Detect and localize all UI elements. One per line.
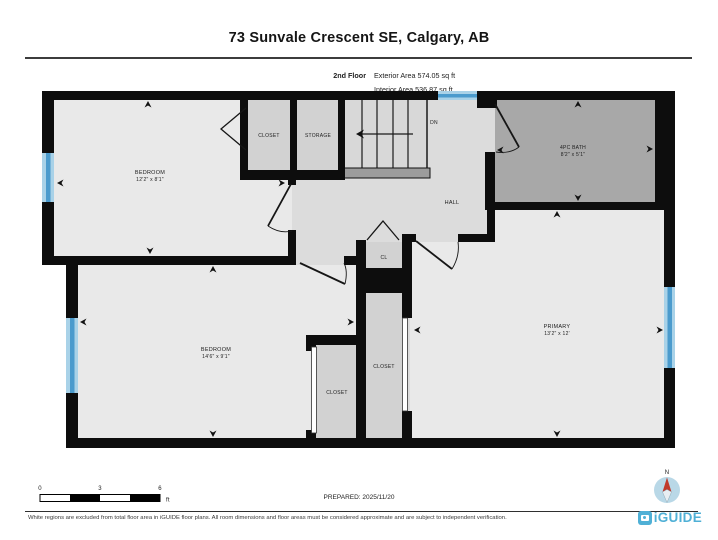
scale-tick-0: 0 (38, 486, 42, 492)
wall (288, 176, 296, 185)
iguide-logo-icon (638, 511, 652, 525)
wall (402, 234, 416, 242)
room-label-closet-bedroom: CLOSET (326, 390, 348, 396)
wall (485, 202, 666, 210)
room-dims-primary: 13'2" x 12' (544, 331, 570, 337)
window-icon (66, 318, 78, 393)
room-label-bath: 4PC BATH (560, 145, 586, 151)
wall (338, 98, 345, 178)
wall (402, 293, 412, 318)
scale-tick-3: 3 (98, 486, 102, 492)
room-label-hall: HALL (445, 200, 460, 206)
window-icon (664, 287, 675, 368)
room-label-bedroom-top: BEDROOM (135, 170, 165, 176)
disclaimer-text: White regions are excluded from total fl… (28, 515, 628, 521)
iguide-logo: iGUIDE (638, 510, 702, 525)
window-icon (438, 91, 477, 100)
wall (477, 91, 497, 108)
room-dims-bedroom-bottom: 14'6" x 9'1" (202, 354, 230, 360)
sliding-door-icon (312, 347, 317, 433)
compass-north-label: N (665, 470, 670, 476)
wall (485, 152, 495, 210)
wall (66, 438, 675, 448)
wall (290, 98, 297, 172)
room-label-storage: STORAGE (305, 133, 332, 139)
room-dims-bedroom-top: 12'2" x 8'1" (136, 177, 164, 183)
room-label-bedroom-bottom: BEDROOM (201, 347, 231, 353)
room-label-closet-primary: CLOSET (373, 364, 395, 370)
sliding-door-icon (403, 318, 408, 411)
footer-divider (25, 511, 698, 512)
stairs-down-label: DN (430, 120, 438, 126)
floor-plan-svg: BEDROOM 12'2" x 8'1" CLOSET STORAGE DN 4… (0, 0, 718, 540)
room-dims-bath: 8'2" x 5'1" (561, 152, 586, 158)
scale-tick-6: 6 (158, 486, 162, 492)
wall (655, 91, 675, 210)
room-label-cl: CL (381, 255, 388, 261)
wall (42, 256, 296, 265)
room-label-closet-top: CLOSET (258, 133, 280, 139)
wall (288, 230, 296, 257)
window-icon (42, 153, 54, 202)
wall (42, 91, 675, 100)
floor-plan-page: 73 Sunvale Crescent SE, Calgary, AB 2nd … (0, 0, 718, 540)
wall (306, 335, 358, 345)
wall (356, 268, 412, 293)
wall (344, 256, 356, 265)
room-label-primary: PRIMARY (544, 324, 571, 330)
wall (402, 411, 412, 438)
prepared-date: PREPARED: 2025/11/20 (0, 494, 718, 501)
iguide-logo-text: iGUIDE (654, 510, 702, 525)
